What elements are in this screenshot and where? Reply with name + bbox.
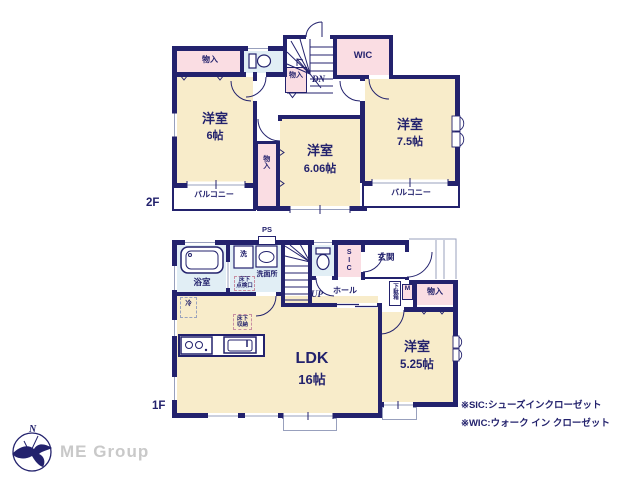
bathtub-icon [181,247,223,273]
room-7-5jo-label: 洋室 [397,118,423,132]
bath-door [226,262,230,288]
casement-window [452,116,464,147]
room-6-06jo-label: 洋室 [307,144,333,158]
room-5-25jo-label: 洋室 [404,340,430,354]
ldk-size: 16帖 [298,373,325,387]
floor-1f-label: 1F [152,400,165,413]
company-logo: ME Group [60,442,149,462]
balcony-left-label: バルコニー [194,191,234,200]
room-6-06jo-size: 6.06帖 [304,163,336,175]
note-wic: ※WIC:ウォーク イン クローゼット [461,415,610,429]
stairs-up-label: UP [311,290,323,300]
floorplan: 冷 床下 点検口 床下 収納 [0,0,640,480]
shoe-box-label: 下駄箱 [392,283,398,300]
ps-label: PS [262,226,272,234]
entrance-label: 玄関 [377,253,394,262]
wic-label: WIC [354,51,372,61]
casement-window [453,336,462,361]
closet-top-left-label: 物入 [202,56,218,65]
sic-label: SIC [345,249,353,273]
stove-icon [181,337,212,354]
entrance-porch [409,239,456,279]
room-7-5jo-size: 7.5帖 [397,136,423,148]
closet-1f-label: 物入 [427,288,443,297]
ldk-sliding-door [337,303,377,308]
door-arc [231,77,432,334]
room-6jo-size: 6帖 [206,130,223,142]
kitchen-sink-icon [224,337,256,353]
room-5-25jo-size: 5.25帖 [400,359,434,372]
compass-icon [12,433,52,471]
hall-label: ホール [333,287,357,296]
room-6jo-label: 洋室 [202,112,228,126]
balcony-right-label: バルコニー [391,189,431,198]
washroom-label: 洗面所 [257,271,278,279]
floor-2f-label: 2F [146,197,159,210]
closet-stairs-label: 物入 [289,72,303,80]
stairs-top-opening [306,22,330,40]
compass-bird-icon [12,444,52,467]
washbasin-icon [256,246,277,267]
stairs-1f [285,244,310,300]
note-sic: ※SIC:シューズインクローゼット [461,397,602,411]
meter-label: M [405,285,410,292]
closet-mid-label: 物入 [262,155,270,169]
stairs-2f [287,39,333,93]
ldk-label: LDK [296,350,329,368]
stairs-dn-label: DN [312,75,325,85]
laundry-label: 洗 [240,251,247,259]
compass-north-label: N [29,424,36,435]
bath-label: 浴室 [193,278,210,287]
